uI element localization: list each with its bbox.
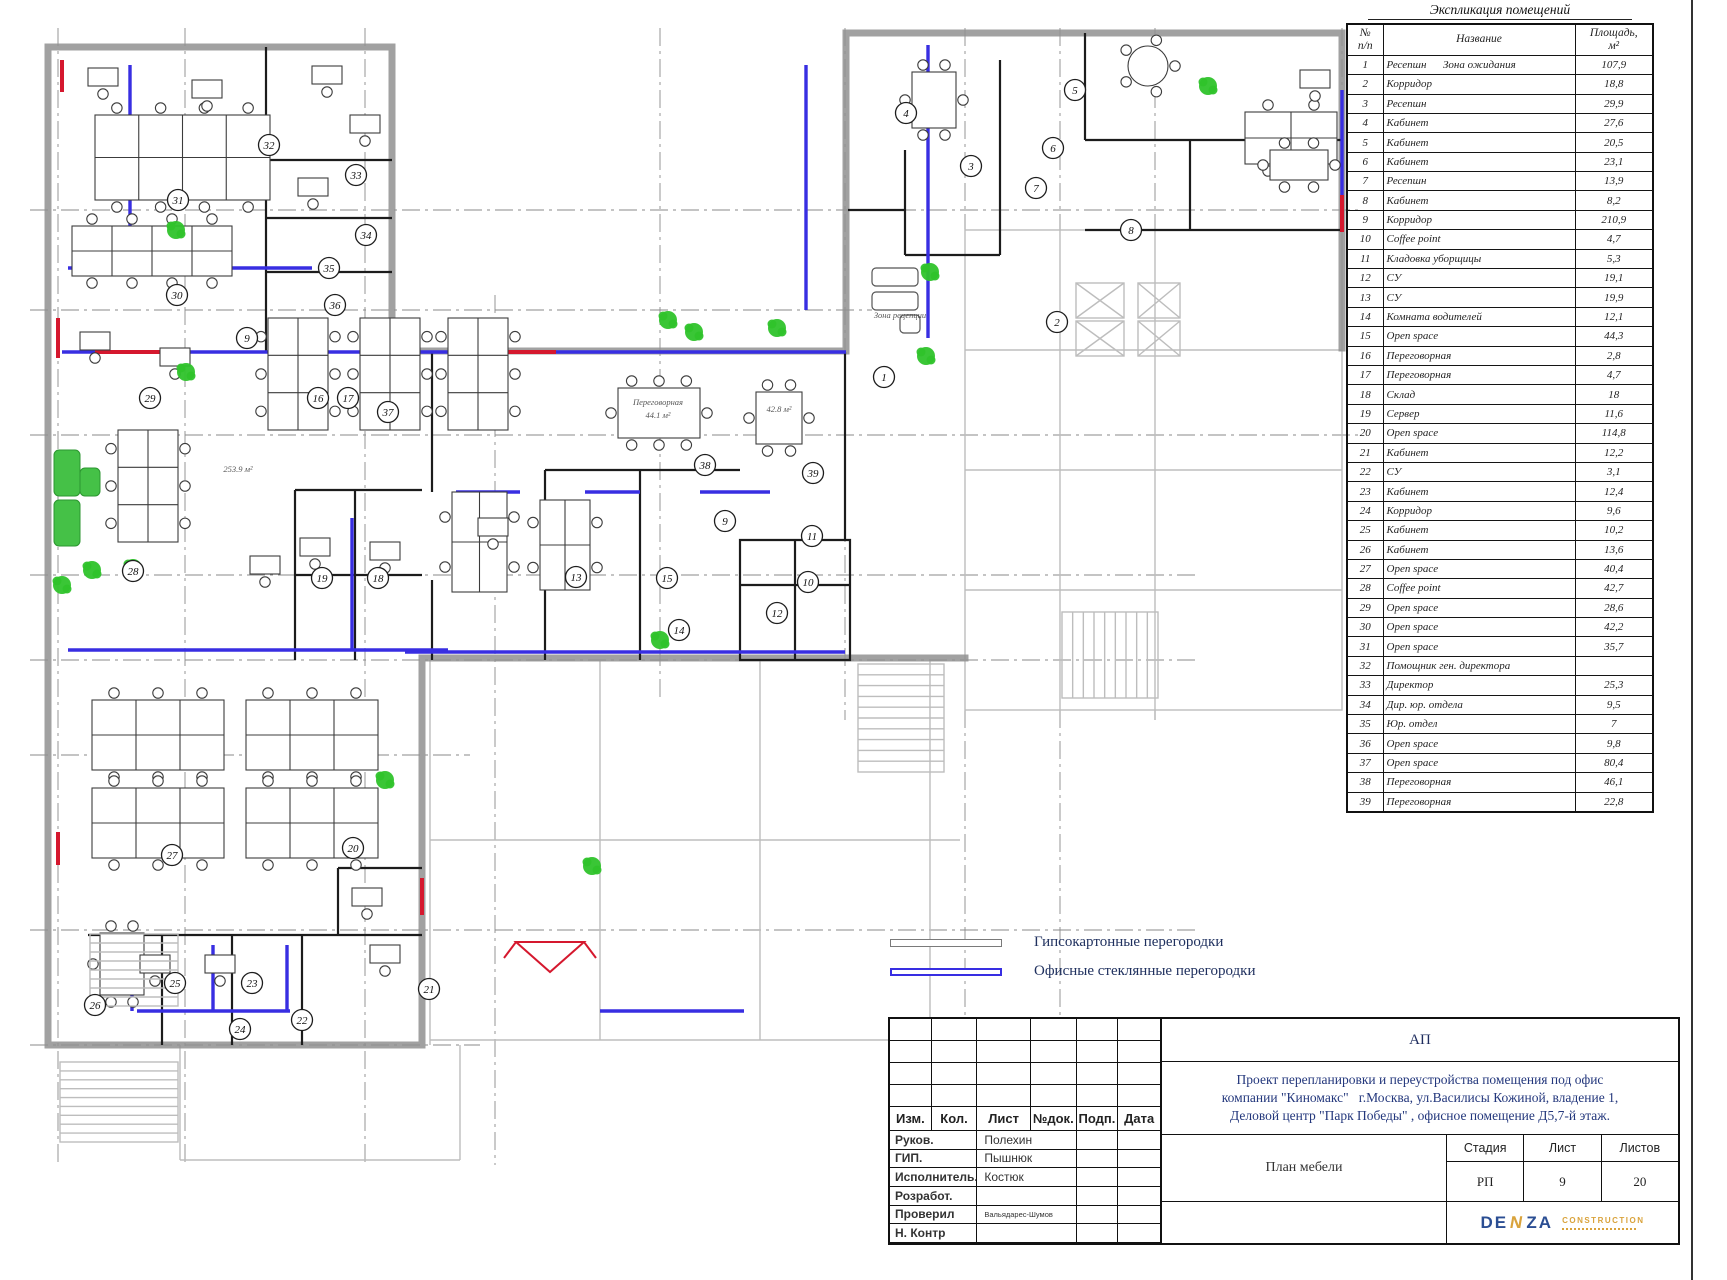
chair bbox=[155, 202, 165, 212]
chair bbox=[440, 562, 450, 572]
table-row: 17Переговорная4,7 bbox=[1347, 366, 1653, 385]
col-name: Название bbox=[1383, 24, 1575, 55]
chair bbox=[1330, 160, 1340, 170]
room-number: 7 bbox=[1033, 183, 1039, 195]
chair bbox=[112, 202, 122, 212]
chair bbox=[744, 413, 754, 423]
chair bbox=[256, 369, 266, 379]
chair bbox=[1310, 91, 1320, 101]
chair bbox=[263, 776, 273, 786]
chair bbox=[180, 481, 190, 491]
chair bbox=[510, 331, 520, 341]
col-area: Площадь, м² bbox=[1575, 24, 1653, 55]
table-row: 34Дир. юр. отдела9,5 bbox=[1347, 695, 1653, 714]
room-number: 35 bbox=[323, 263, 336, 275]
table-row: 20Open space114,8 bbox=[1347, 424, 1653, 443]
chair bbox=[330, 369, 340, 379]
table-row: 6Кабинет23,1 bbox=[1347, 152, 1653, 171]
legend-label: Офисные стеклянные перегородки bbox=[1034, 963, 1255, 980]
chair bbox=[322, 87, 332, 97]
stamp-header-row: Изм.Кол.Лист№док.Подп.Дата bbox=[890, 1107, 1160, 1131]
explication-body: 1Ресепшн Зона ожидания107,92Корридор18,8… bbox=[1347, 55, 1653, 812]
chair bbox=[362, 909, 372, 919]
chair bbox=[1121, 77, 1131, 87]
room-number: 22 bbox=[297, 1015, 309, 1027]
room-number: 25 bbox=[170, 978, 182, 990]
meeting-table bbox=[756, 392, 802, 444]
table-row: 29Open space28,6 bbox=[1347, 598, 1653, 617]
chair bbox=[510, 369, 520, 379]
room-number: 2 bbox=[1054, 317, 1060, 329]
table-row: 24Корридор9,6 bbox=[1347, 501, 1653, 520]
desk bbox=[352, 888, 382, 906]
meeting-table bbox=[912, 72, 956, 128]
table-row: 8Кабинет8,2 bbox=[1347, 191, 1653, 210]
table-row: 28Coffee point42,7 bbox=[1347, 579, 1653, 598]
stage-label: Стадия bbox=[1447, 1135, 1524, 1161]
logo-word-construction: CONSTRUCTION bbox=[1562, 1216, 1644, 1225]
room-number: 15 bbox=[662, 573, 674, 585]
room-number: 23 bbox=[247, 978, 259, 990]
room-number: 31 bbox=[172, 195, 184, 207]
table-row: 2Корридор18,8 bbox=[1347, 75, 1653, 94]
chair bbox=[592, 562, 602, 572]
chair bbox=[307, 776, 317, 786]
title-block: Изм.Кол.Лист№док.Подп.ДатаРуков.ПолехинГ… bbox=[888, 1017, 1680, 1245]
desk bbox=[80, 332, 110, 350]
room-label: 253.9 м² bbox=[223, 464, 253, 474]
table-row: 7Ресепшн13,9 bbox=[1347, 172, 1653, 191]
table-row: 18Склад18 bbox=[1347, 385, 1653, 404]
chair bbox=[153, 688, 163, 698]
room-number: 1 bbox=[881, 372, 887, 384]
legend-swatch bbox=[890, 968, 1002, 976]
stamp-role-row: Исполнитель.Костюк bbox=[890, 1168, 1160, 1187]
chair bbox=[592, 517, 602, 527]
chair bbox=[681, 440, 691, 450]
chair bbox=[330, 406, 340, 416]
room-number: 36 bbox=[329, 300, 342, 312]
sofa bbox=[872, 268, 918, 286]
chair bbox=[106, 518, 116, 528]
chair bbox=[918, 130, 928, 140]
chair bbox=[150, 976, 160, 986]
chair bbox=[127, 278, 137, 288]
chair bbox=[762, 380, 772, 390]
chair bbox=[436, 406, 446, 416]
stamp-empty-cell bbox=[1162, 1202, 1446, 1243]
table-row: 33Директор25,3 bbox=[1347, 676, 1653, 695]
chair bbox=[1308, 182, 1318, 192]
room-label: Зона рецепции bbox=[874, 310, 926, 320]
room-number: 30 bbox=[171, 290, 184, 302]
chair bbox=[940, 130, 950, 140]
chair bbox=[488, 539, 498, 549]
chair bbox=[804, 413, 814, 423]
chair bbox=[180, 518, 190, 528]
table-row: 25Кабинет10,2 bbox=[1347, 521, 1653, 540]
chair bbox=[1258, 160, 1268, 170]
legend-label: Гипсокартонные перегородки bbox=[1034, 934, 1223, 951]
room-number: 4 bbox=[903, 108, 909, 120]
chair bbox=[207, 214, 217, 224]
chair bbox=[360, 136, 370, 146]
chair bbox=[1308, 138, 1318, 148]
room-number: 33 bbox=[350, 170, 363, 182]
chair bbox=[509, 512, 519, 522]
col-num: № п/п bbox=[1347, 24, 1383, 55]
chair bbox=[351, 776, 361, 786]
table-row: 11Кладовка уборщицы5,3 bbox=[1347, 249, 1653, 268]
chair bbox=[109, 688, 119, 698]
room-number: 14 bbox=[674, 625, 686, 637]
logo-text-n: N bbox=[1508, 1213, 1526, 1233]
chair bbox=[958, 95, 968, 105]
table-row: 5Кабинет20,5 bbox=[1347, 133, 1653, 152]
sheet-name-cell: План мебели bbox=[1162, 1135, 1447, 1243]
round-table bbox=[1128, 46, 1168, 86]
chair bbox=[106, 443, 116, 453]
chair bbox=[199, 202, 209, 212]
legend-item: Офисные стеклянные перегородки bbox=[890, 963, 1255, 980]
table-row: 31Open space35,7 bbox=[1347, 637, 1653, 656]
explication-header-row: № п/п Название Площадь, м² bbox=[1347, 24, 1653, 55]
chair bbox=[762, 446, 772, 456]
chair bbox=[153, 776, 163, 786]
room-number: 9 bbox=[722, 516, 728, 528]
chair bbox=[626, 440, 636, 450]
stage-value: РП bbox=[1447, 1162, 1524, 1201]
table-row: 22СУ3,1 bbox=[1347, 462, 1653, 481]
sheet-value: 9 bbox=[1524, 1162, 1601, 1201]
stairs bbox=[1062, 612, 1158, 698]
chair bbox=[1279, 138, 1289, 148]
chair bbox=[202, 101, 212, 111]
room-number: 38 bbox=[699, 460, 712, 472]
sofa-green bbox=[54, 500, 80, 546]
chair bbox=[155, 103, 165, 113]
explication-title: Экспликация помещений bbox=[1368, 2, 1633, 20]
stamp-revision-table: Изм.Кол.Лист№док.Подп.ДатаРуков.ПолехинГ… bbox=[890, 1019, 1162, 1243]
desk bbox=[370, 945, 400, 963]
chair bbox=[197, 776, 207, 786]
room-number: 16 bbox=[313, 393, 325, 405]
room-number: 32 bbox=[263, 140, 276, 152]
chair bbox=[348, 369, 358, 379]
desk bbox=[205, 955, 235, 973]
table-row: 14Комната водителей12,1 bbox=[1347, 307, 1653, 326]
stamp-role-row: ПроверилВальядарес-Шумов bbox=[890, 1206, 1160, 1225]
chair bbox=[440, 512, 450, 522]
chair bbox=[112, 103, 122, 113]
chair bbox=[1263, 100, 1273, 110]
chair bbox=[606, 408, 616, 418]
chair bbox=[528, 517, 538, 527]
room-number: 20 bbox=[348, 843, 360, 855]
sofa-green bbox=[80, 468, 100, 496]
stamp-code: АП bbox=[1162, 1019, 1678, 1062]
table-row: 9Корридор210,9 bbox=[1347, 210, 1653, 229]
room-number: 19 bbox=[317, 573, 329, 585]
table-row: 15Open space44,3 bbox=[1347, 327, 1653, 346]
room-number: 8 bbox=[1128, 225, 1134, 237]
table-row: 12СУ19,1 bbox=[1347, 269, 1653, 288]
chair bbox=[785, 380, 795, 390]
chair bbox=[510, 406, 520, 416]
chair bbox=[1121, 45, 1131, 55]
sheet-label: Лист bbox=[1524, 1135, 1601, 1161]
chair bbox=[307, 688, 317, 698]
table-row: 30Open space42,2 bbox=[1347, 618, 1653, 637]
chair bbox=[626, 376, 636, 386]
chair bbox=[702, 408, 712, 418]
table-row: 38Переговорная46,1 bbox=[1347, 773, 1653, 792]
sheets-label: Листов bbox=[1602, 1135, 1678, 1161]
chair bbox=[109, 776, 119, 786]
room-number: 9 bbox=[244, 333, 250, 345]
room-number: 10 bbox=[803, 577, 815, 589]
room-number: 39 bbox=[807, 468, 820, 480]
logo-tagline bbox=[1562, 1228, 1636, 1230]
room-number: 27 bbox=[167, 850, 179, 862]
room-number: 18 bbox=[373, 573, 385, 585]
room-number: 34 bbox=[360, 230, 373, 242]
stamp-main: АП Проект перепланировки и переустройств… bbox=[1162, 1019, 1678, 1243]
chair bbox=[109, 860, 119, 870]
table-row: 37Open space80,4 bbox=[1347, 753, 1653, 772]
room-number: 26 bbox=[90, 1000, 102, 1012]
chair bbox=[436, 331, 446, 341]
chair bbox=[106, 921, 116, 931]
room-number: 24 bbox=[235, 1024, 247, 1036]
table-row: 32Помощник ген. директора bbox=[1347, 656, 1653, 675]
stage-sheet-grid: Стадия Лист Листов РП 9 20 DENZA CONSTRU… bbox=[1447, 1135, 1678, 1243]
table-row: 27Open space40,4 bbox=[1347, 559, 1653, 578]
desk bbox=[88, 68, 118, 86]
desk bbox=[370, 542, 400, 560]
project-title: Проект перепланировки и переустройства п… bbox=[1162, 1062, 1678, 1135]
table-row: 16Переговорная2,8 bbox=[1347, 346, 1653, 365]
chair bbox=[243, 103, 253, 113]
sheet-name: План мебели bbox=[1162, 1135, 1446, 1202]
chair bbox=[1279, 182, 1289, 192]
explication-panel: Экспликация помещений № п/п Название Пло… bbox=[1346, 2, 1654, 813]
explication-table: № п/п Название Площадь, м² 1Ресепшн Зона… bbox=[1346, 23, 1654, 813]
room-number: 5 bbox=[1072, 85, 1078, 97]
table-row: 21Кабинет12,2 bbox=[1347, 443, 1653, 462]
room-number: 3 bbox=[967, 161, 974, 173]
room-number: 12 bbox=[772, 608, 784, 620]
table-row: 39Переговорная22,8 bbox=[1347, 792, 1653, 812]
chair bbox=[263, 688, 273, 698]
room-label: 44.1 м² bbox=[646, 410, 671, 420]
desk bbox=[298, 178, 328, 196]
chair bbox=[422, 369, 432, 379]
stairs bbox=[60, 1062, 178, 1142]
legend-swatch bbox=[890, 939, 1002, 947]
chair bbox=[90, 353, 100, 363]
room-label: 42.8 м² bbox=[767, 404, 792, 414]
chair bbox=[654, 440, 664, 450]
chair bbox=[681, 376, 691, 386]
table-row: 4Кабинет27,6 bbox=[1347, 113, 1653, 132]
room-number: 11 bbox=[807, 531, 817, 543]
chair bbox=[422, 406, 432, 416]
chair bbox=[436, 369, 446, 379]
chair bbox=[918, 60, 928, 70]
chair bbox=[528, 562, 538, 572]
table-row: 35Юр. отдел7 bbox=[1347, 715, 1653, 734]
table-row: 19Сервер11,6 bbox=[1347, 404, 1653, 423]
chair bbox=[256, 406, 266, 416]
chair bbox=[348, 331, 358, 341]
logo-text-de: DE bbox=[1480, 1213, 1508, 1233]
room-number: 29 bbox=[145, 393, 157, 405]
room-label: Переговорная bbox=[632, 397, 683, 407]
room-number: 6 bbox=[1050, 143, 1056, 155]
desk bbox=[250, 556, 280, 574]
chair bbox=[654, 376, 664, 386]
table-row: 1Ресепшн Зона ожидания107,9 bbox=[1347, 55, 1653, 74]
sofa-green bbox=[54, 450, 80, 496]
chair bbox=[422, 331, 432, 341]
interior-walls bbox=[88, 33, 1342, 1045]
chair bbox=[128, 921, 138, 931]
stamp-role-row: Розработ. bbox=[890, 1187, 1160, 1206]
chair bbox=[307, 860, 317, 870]
chair bbox=[380, 966, 390, 976]
room-number: 21 bbox=[424, 984, 435, 996]
chair bbox=[197, 688, 207, 698]
chair bbox=[87, 214, 97, 224]
denza-logo: DENZA CONSTRUCTION bbox=[1447, 1202, 1678, 1243]
chair bbox=[308, 199, 318, 209]
chair bbox=[153, 860, 163, 870]
table-row: 36Open space9,8 bbox=[1347, 734, 1653, 753]
chair bbox=[1151, 35, 1161, 45]
desk bbox=[350, 115, 380, 133]
chair bbox=[98, 89, 108, 99]
table-row: 26Кабинет13,6 bbox=[1347, 540, 1653, 559]
chair bbox=[127, 214, 137, 224]
chair bbox=[215, 976, 225, 986]
logo-text-za: ZA bbox=[1526, 1213, 1553, 1233]
desk bbox=[192, 80, 222, 98]
chair bbox=[263, 860, 273, 870]
sheets-value: 20 bbox=[1602, 1162, 1678, 1201]
chair bbox=[1151, 86, 1161, 96]
chair bbox=[243, 202, 253, 212]
chair bbox=[197, 860, 207, 870]
legend-item: Гипсокартонные перегородки bbox=[890, 934, 1223, 951]
chair bbox=[106, 481, 116, 491]
desk bbox=[1300, 70, 1330, 88]
chair bbox=[351, 860, 361, 870]
chair bbox=[351, 688, 361, 698]
chair bbox=[1170, 61, 1180, 71]
chair bbox=[509, 562, 519, 572]
chair bbox=[87, 278, 97, 288]
stamp-role-row: Н. Контр bbox=[890, 1224, 1160, 1243]
room-number: 13 bbox=[571, 572, 583, 584]
chair bbox=[940, 60, 950, 70]
room-number: 37 bbox=[382, 407, 395, 419]
desk bbox=[300, 538, 330, 556]
drawing-sheet: Переговорная44.1 м²42.8 м²253.9 м²Зона р… bbox=[0, 0, 1727, 1280]
desk bbox=[478, 518, 508, 536]
table-row: 13СУ19,9 bbox=[1347, 288, 1653, 307]
desk bbox=[312, 66, 342, 84]
table-row: 10Coffee point4,7 bbox=[1347, 230, 1653, 249]
table-row: 23Кабинет12,4 bbox=[1347, 482, 1653, 501]
room-number: 17 bbox=[343, 393, 355, 405]
stamp-role-row: Руков.Полехин bbox=[890, 1131, 1160, 1150]
chair bbox=[330, 331, 340, 341]
table-row: 3Ресепшн29,9 bbox=[1347, 94, 1653, 113]
chair bbox=[207, 278, 217, 288]
sofa bbox=[872, 292, 918, 310]
meeting-table bbox=[1270, 150, 1328, 180]
chair bbox=[785, 446, 795, 456]
exit-arrow bbox=[504, 942, 596, 972]
chair bbox=[260, 577, 270, 587]
room-number: 28 bbox=[128, 566, 140, 578]
stamp-role-row: ГИП.Пышнюк bbox=[890, 1150, 1160, 1169]
chair bbox=[180, 443, 190, 453]
